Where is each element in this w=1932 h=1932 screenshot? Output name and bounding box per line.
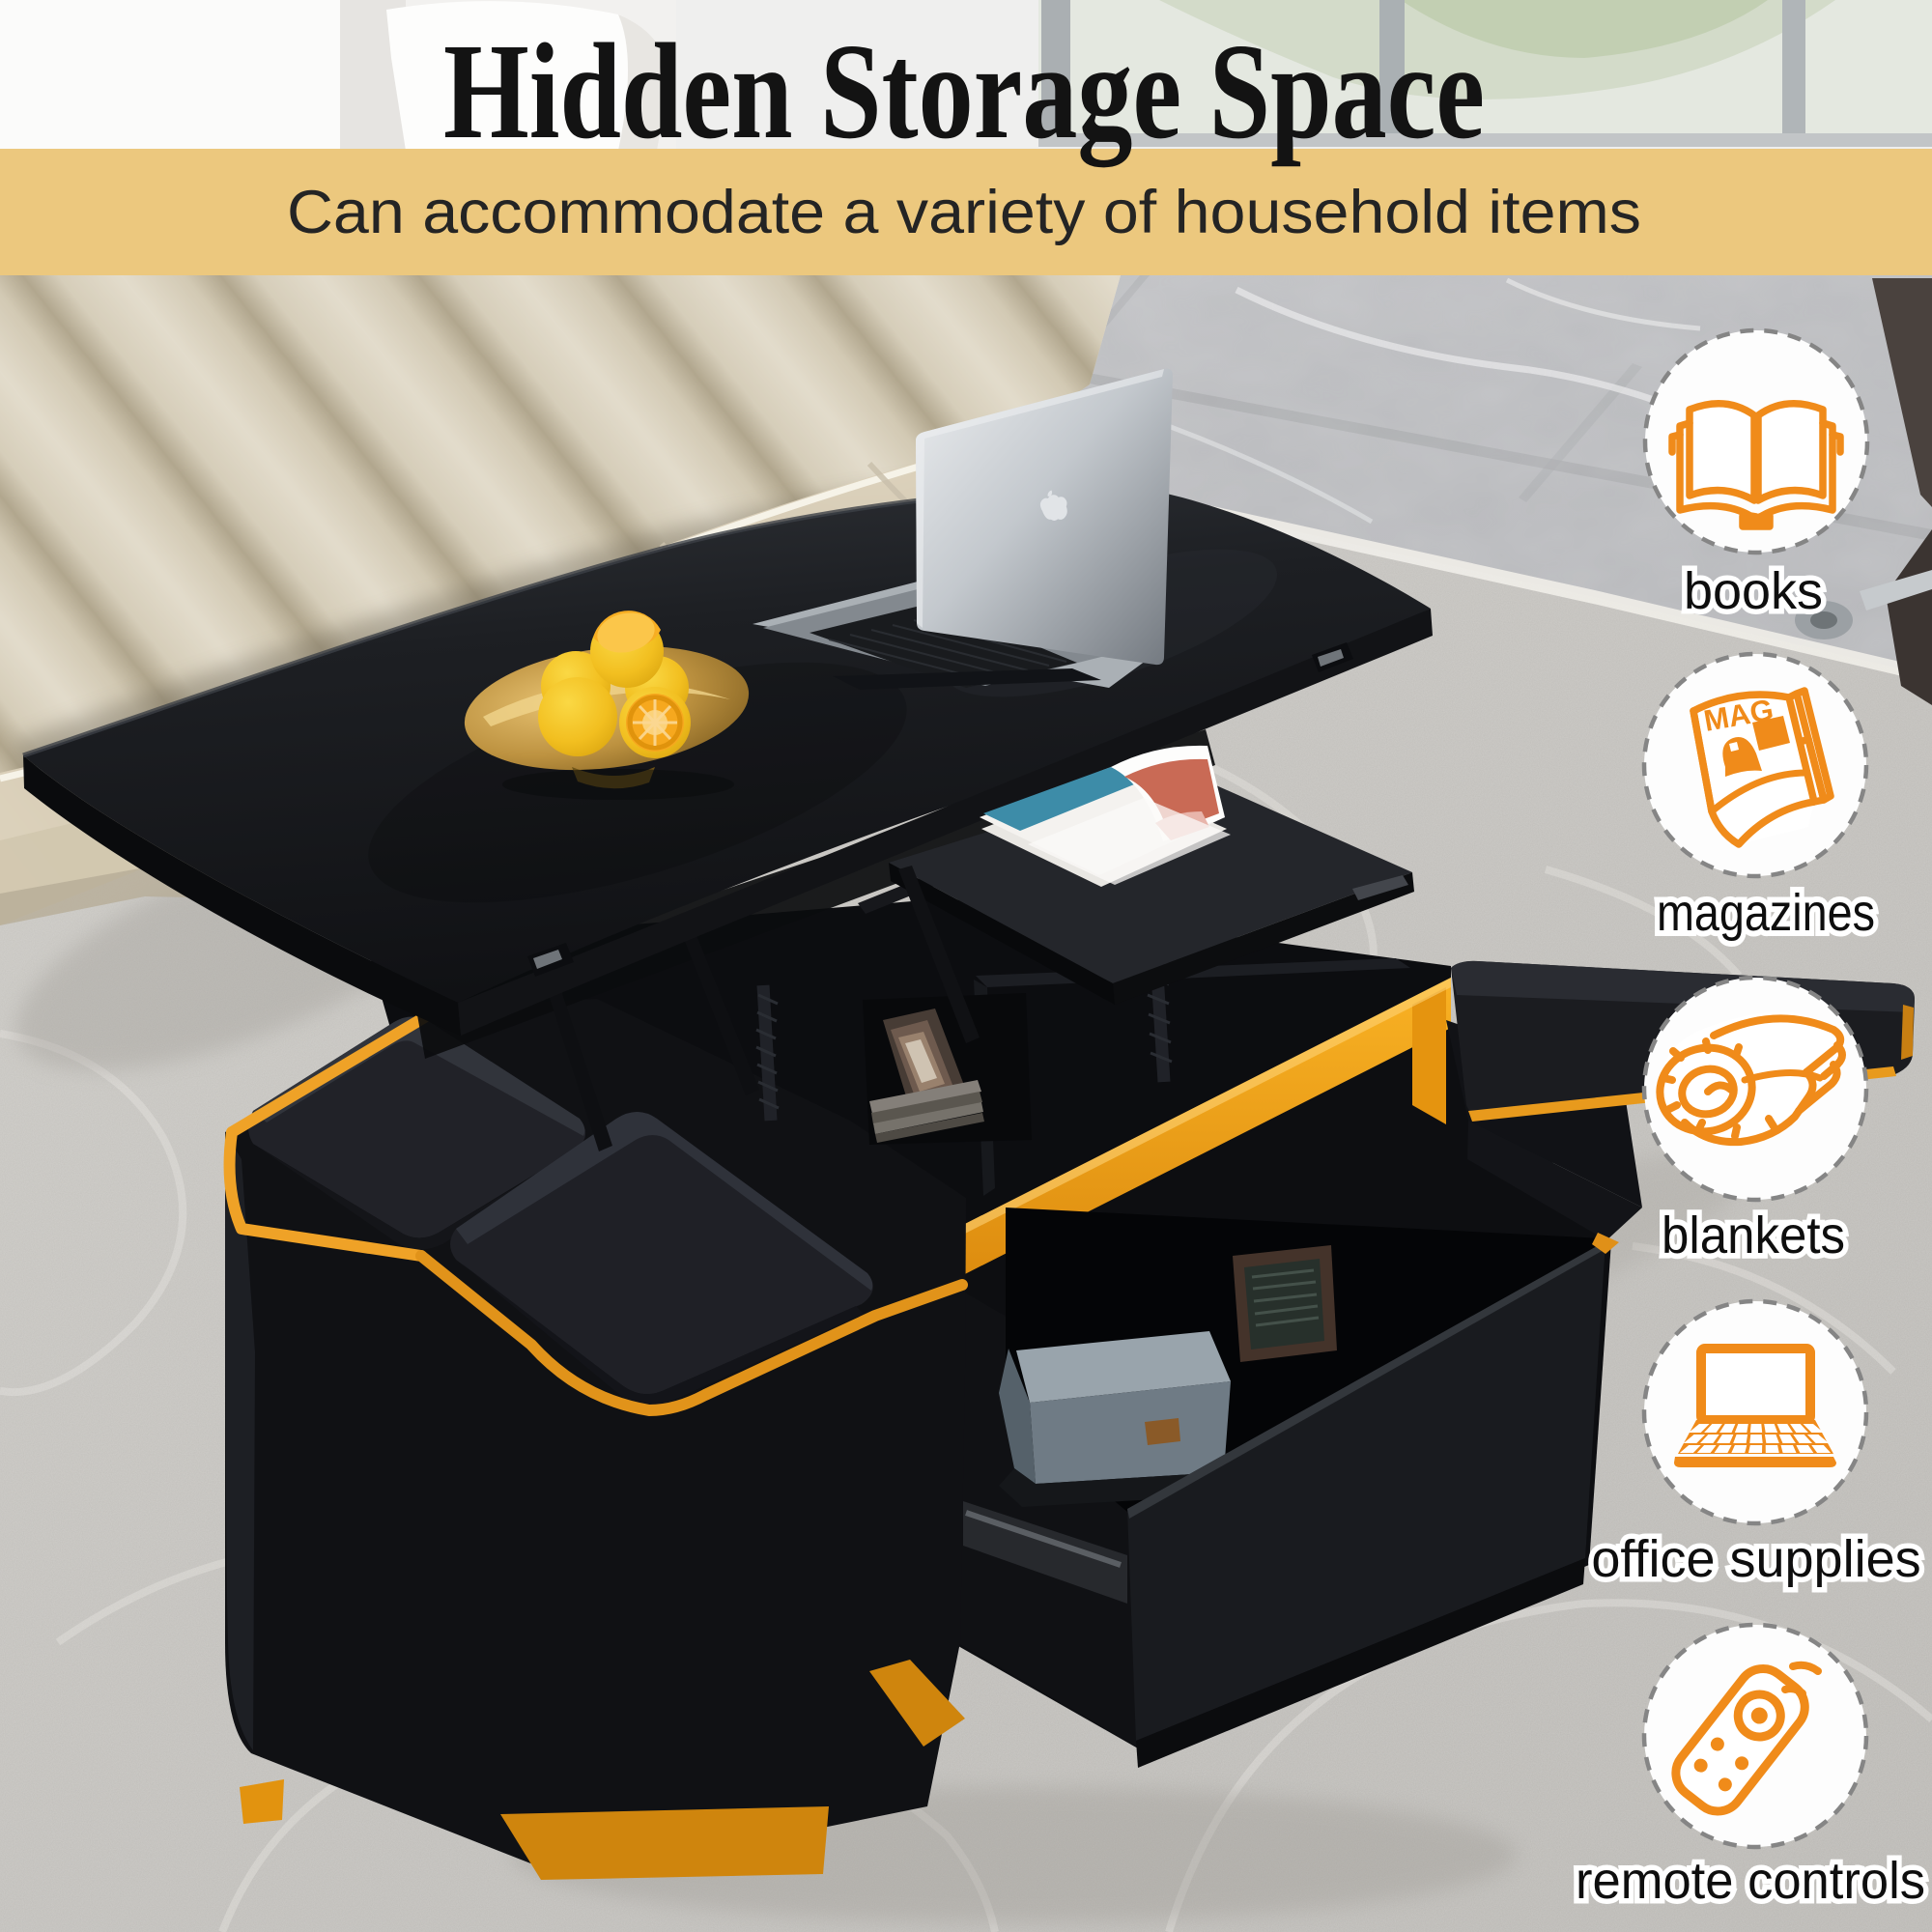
svg-text:blankets: blankets (1662, 1207, 1845, 1265)
svg-text:office supplies: office supplies (1591, 1530, 1920, 1588)
svg-text:magazines: magazines (1657, 883, 1875, 942)
svg-text:remote controls: remote controls (1576, 1852, 1925, 1910)
svg-text:books: books (1684, 562, 1823, 620)
svg-text:Can accommodate a variety of h: Can accommodate a variety of household i… (287, 179, 1641, 246)
svg-text:Hidden Storage Space: Hidden Storage Space (443, 14, 1485, 167)
